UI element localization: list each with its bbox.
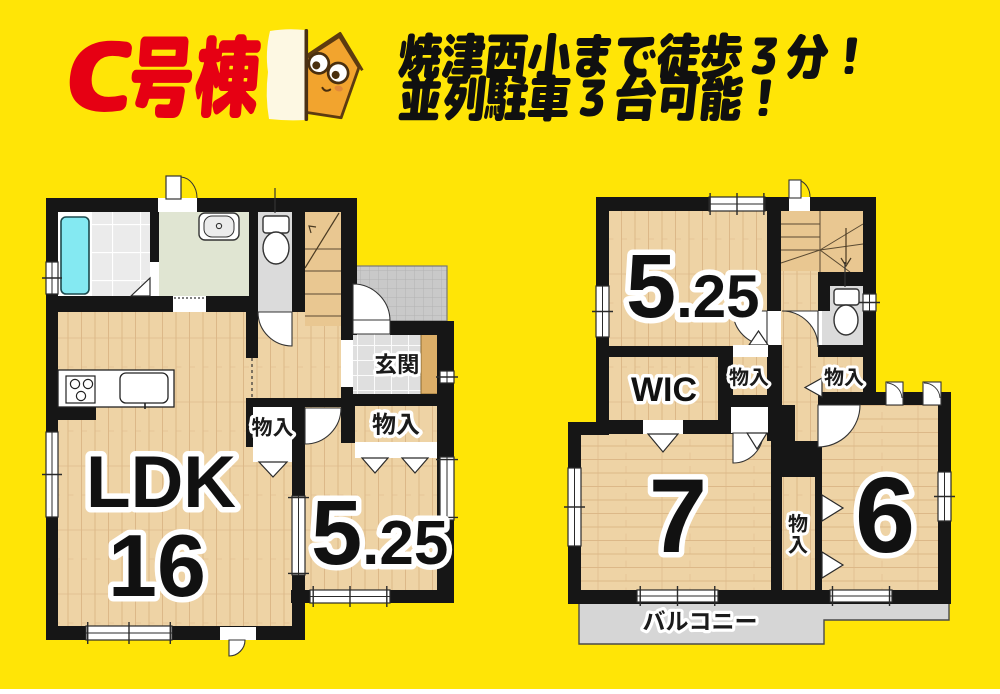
svg-text:6: 6	[855, 454, 915, 575]
svg-text:16: 16	[108, 516, 206, 615]
svg-text:7: 7	[649, 458, 707, 575]
svg-text:LDK: LDK	[86, 442, 236, 523]
svg-text:WIC: WIC	[631, 371, 697, 409]
